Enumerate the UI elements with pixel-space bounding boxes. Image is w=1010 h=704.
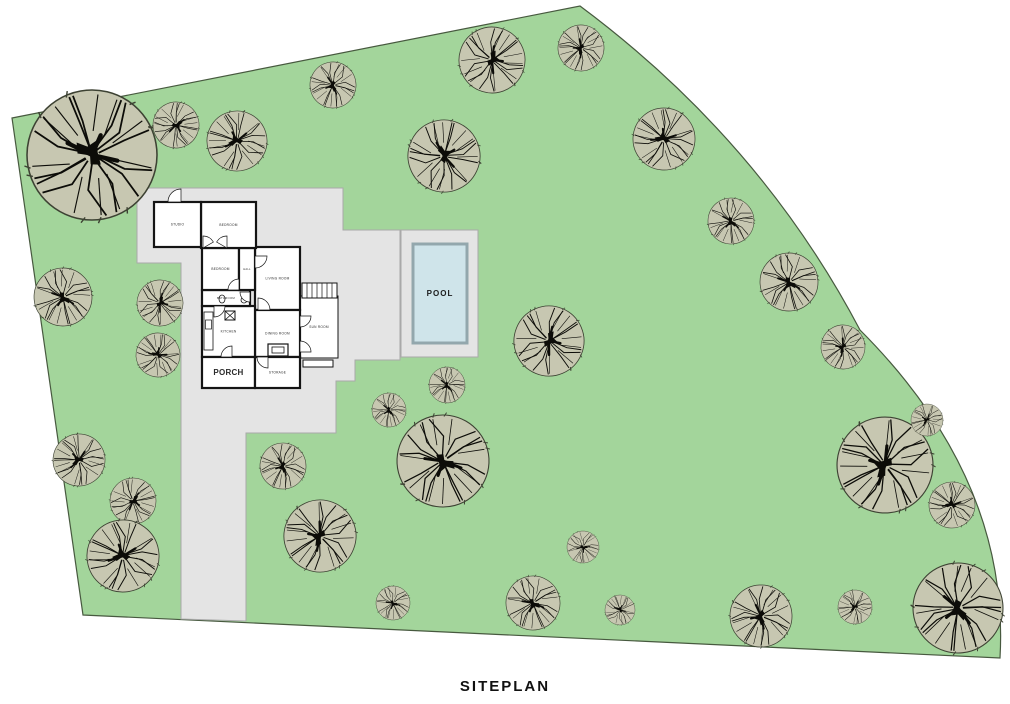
room-label-studio: STUDIO: [171, 223, 185, 227]
siteplan-title: SITEPLAN: [0, 678, 1010, 695]
room-label-storage: STORAGE: [269, 371, 286, 375]
pool-label: POOL: [427, 289, 454, 298]
room-label-bedroom-1: BEDROOM: [219, 223, 237, 227]
room-label-kitchen: KITCHEN: [221, 330, 237, 334]
siteplan-canvas: POOL SUN ROOMLIVING ROOMDINING ROOMKITCH…: [0, 0, 1010, 704]
room-label-hall: HALL: [243, 267, 251, 271]
siteplan-drawing: POOL SUN ROOMLIVING ROOMDINING ROOMKITCH…: [0, 0, 1010, 704]
room-label-living-room: LIVING ROOM: [265, 277, 289, 281]
room-label-porch: PORCH: [213, 368, 243, 377]
room-label-sun-room: SUN ROOM: [309, 325, 329, 329]
room-label-bedroom-2: BEDROOM: [211, 267, 229, 271]
room-label-dining-room: DINING ROOM: [265, 332, 290, 336]
room-label-bathroom: BATHROOM: [217, 296, 235, 300]
